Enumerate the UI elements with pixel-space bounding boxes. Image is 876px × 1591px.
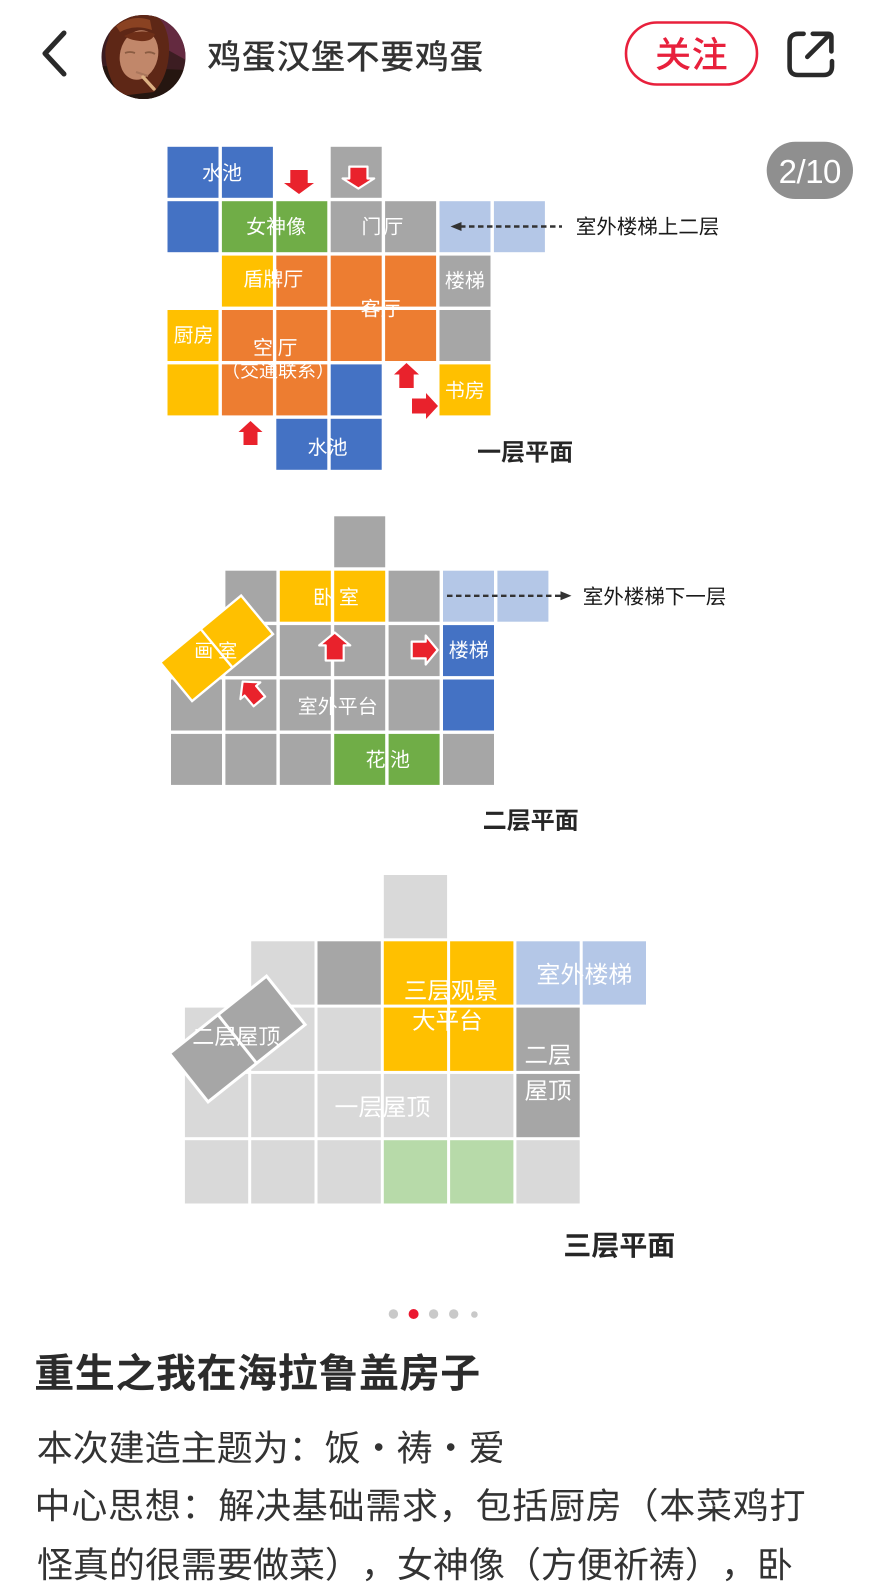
svg-text:2/10: 2/10 — [779, 153, 841, 190]
